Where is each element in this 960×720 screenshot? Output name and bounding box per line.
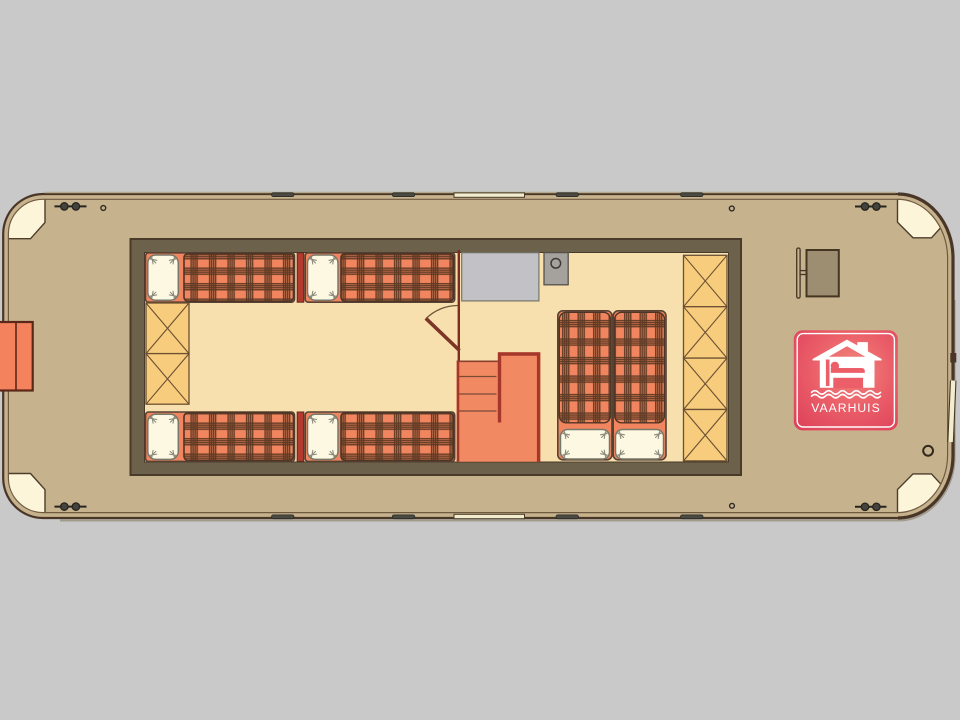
svg-text:VAARHUIS: VAARHUIS	[811, 401, 880, 415]
